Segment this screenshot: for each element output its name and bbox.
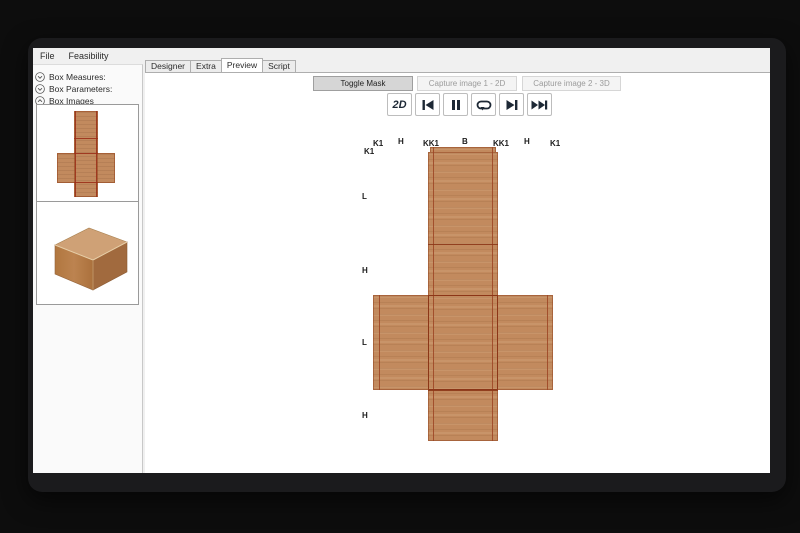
panel-label: H <box>362 412 368 420</box>
menu-file[interactable]: File <box>38 50 57 62</box>
playback-controls: 2D <box>387 93 552 116</box>
mini-unfold-left-flap <box>57 153 75 183</box>
chevron-down-circle-icon <box>35 72 45 82</box>
preview-canvas: Toggle Mask Capture image 1 - 2D Capture… <box>145 72 770 473</box>
panel-label: K1 <box>550 140 560 148</box>
box-3d-thumbnail[interactable] <box>36 201 139 305</box>
box-3d-render <box>37 202 138 304</box>
mini-unfold-column <box>74 111 98 197</box>
panel-label: KK1 <box>493 140 509 148</box>
fold-line <box>547 295 548 390</box>
tab-designer[interactable]: Designer <box>145 60 191 72</box>
sidebar-item-box-parameters[interactable]: Box Parameters: <box>35 83 141 95</box>
fast-forward-button[interactable] <box>527 93 552 116</box>
panel-label: K1 <box>364 148 374 156</box>
panel-label: K1 <box>373 140 383 148</box>
sidebar-item-label: Box Parameters: <box>49 84 112 94</box>
fold-line <box>379 295 380 390</box>
next-icon <box>505 99 519 111</box>
tab-extra[interactable]: Extra <box>190 60 222 72</box>
app-window: File Feasibility Box Measures: Box Param… <box>33 48 770 473</box>
skip-back-button[interactable] <box>415 93 440 116</box>
panel-label: KK1 <box>423 140 439 148</box>
panel-label: H <box>362 267 368 275</box>
unfold-center-column <box>428 152 498 441</box>
panel-label: L <box>362 339 367 347</box>
loop-button[interactable] <box>471 93 496 116</box>
mini-unfold-right-flap <box>97 153 115 183</box>
capture-image-1-2d-button[interactable]: Capture image 1 - 2D <box>417 76 517 91</box>
panel-label: H <box>398 138 404 146</box>
fast-forward-icon <box>531 99 548 111</box>
2d-mode-button[interactable]: 2D <box>387 93 412 116</box>
pause-icon <box>450 99 462 111</box>
capture-image-2-3d-button[interactable]: Capture image 2 - 3D <box>522 76 621 91</box>
sidebar-item-label: Box Measures: <box>49 72 106 82</box>
unfold-left-flap <box>373 295 429 390</box>
panel-label: H <box>524 138 530 146</box>
tab-script[interactable]: Script <box>262 60 296 72</box>
menu-feasibility[interactable]: Feasibility <box>67 50 111 62</box>
unfold-right-flap <box>497 295 553 390</box>
fold-line <box>492 147 493 441</box>
fold-line <box>433 147 434 441</box>
toggle-mask-button[interactable]: Toggle Mask <box>313 76 413 91</box>
chevron-down-circle-icon <box>35 84 45 94</box>
box-unfold-2d-thumbnail[interactable] <box>36 104 139 202</box>
pause-button[interactable] <box>443 93 468 116</box>
next-button[interactable] <box>499 93 524 116</box>
panel-label: B <box>462 138 468 146</box>
fold-line <box>428 390 498 391</box>
sidebar-item-box-measures[interactable]: Box Measures: <box>35 71 141 83</box>
skip-back-icon <box>421 99 435 111</box>
tab-preview[interactable]: Preview <box>221 58 263 72</box>
box-images-panel <box>36 104 139 305</box>
tab-strip: Designer Extra Preview Script <box>145 58 296 72</box>
panel-label: L <box>362 193 367 201</box>
menu-bar: File Feasibility <box>33 48 770 64</box>
sidebar: Box Measures: Box Parameters: Box Images <box>33 64 143 473</box>
fold-line <box>428 244 498 245</box>
fold-line <box>428 295 498 296</box>
loop-icon <box>476 99 492 111</box>
